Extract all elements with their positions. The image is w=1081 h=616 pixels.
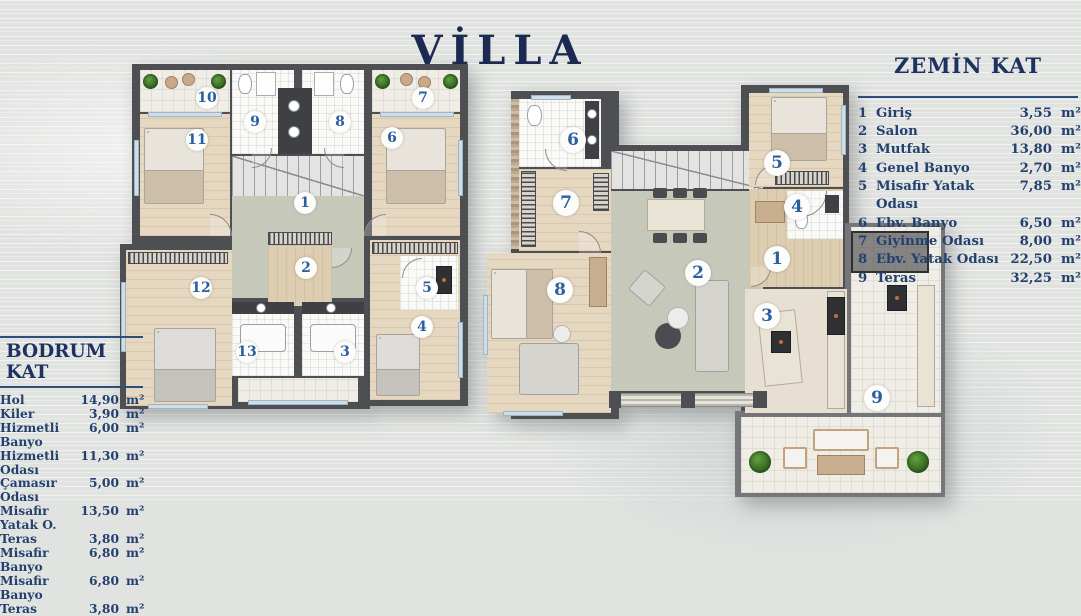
legend-num: 5 (858, 178, 876, 215)
legend-area: 6,50 (1006, 215, 1052, 233)
dining-chair (673, 188, 687, 198)
wardrobe (128, 252, 228, 264)
window (134, 140, 139, 196)
legend-unit: m² (119, 449, 143, 477)
room-number-badge: 13 (236, 341, 258, 363)
legend-area: 3,80 (77, 532, 119, 546)
room-number-badge: 2 (295, 257, 317, 279)
grill-icon (887, 285, 907, 311)
toilet-icon (340, 74, 354, 94)
sink-wall (278, 88, 312, 154)
sofa (695, 280, 729, 372)
plant-icon (211, 74, 226, 89)
bodrum-kat-legend-title: BODRUM KAT (0, 336, 143, 388)
coffee-table (667, 307, 689, 329)
legend-unit: m² (1052, 251, 1078, 269)
wardrobe (593, 173, 609, 211)
desk (589, 257, 607, 307)
sink-icon (256, 303, 266, 313)
legend-unit: m² (1052, 233, 1078, 251)
room-number-badge: 10 (196, 87, 218, 109)
plant-icon (749, 451, 771, 473)
staircase (611, 151, 763, 189)
wardrobe (268, 232, 332, 245)
terrace-shelf (917, 285, 935, 407)
legend-row: 8Ebv. Yatak Odası22,50m² (858, 251, 1078, 269)
legend-name: Misafir Banyo (0, 574, 77, 602)
sink-icon (587, 109, 597, 119)
sink-icon (288, 100, 300, 112)
room-number-badge: 6 (560, 127, 586, 153)
legend-row: 3Mutfak13,80m² (858, 141, 1078, 159)
legend-unit: m² (1052, 141, 1078, 159)
legend-unit: m² (119, 574, 143, 602)
legend-num: 2 (858, 123, 876, 141)
legend-unit: m² (119, 532, 143, 546)
bodrum-kat-plan: 1 2 3 4 5 6 7 8 9 10 11 12 13 (118, 62, 476, 444)
legend-row: Hizmetli Banyo6,00m² (0, 421, 143, 449)
dining-chair (693, 188, 707, 198)
legend-name: Çamasır Odası (0, 476, 77, 504)
window (148, 112, 222, 117)
legend-name: Teras (0, 532, 77, 546)
window (503, 411, 563, 416)
dining-table (647, 199, 705, 231)
legend-name: Ebv. Yatak Odası (876, 251, 1006, 269)
sink-icon (326, 303, 336, 313)
legend-name: Teras (0, 602, 77, 616)
outdoor-table (817, 455, 865, 475)
bodrum-kat-legend-rows: Hol14,90m²Kiler3,90m²Hizmetli Banyo6,00m… (0, 388, 143, 616)
room-number-badge: 4 (784, 194, 810, 220)
legend-name: Hizmetli Odası (0, 449, 77, 477)
legend-area: 6,00 (77, 421, 119, 449)
pillar (753, 391, 767, 408)
stone-veneer-wall (511, 99, 519, 249)
legend-row: Teras3,80m² (0, 532, 143, 546)
legend-unit: m² (1052, 160, 1078, 178)
legend-unit: m² (119, 476, 143, 504)
legend-name: Genel Banyo (876, 160, 1006, 178)
bed (376, 334, 420, 396)
dining-chair (693, 233, 707, 243)
sofa (519, 343, 579, 395)
dining-chair (673, 233, 687, 243)
legend-area: 3,55 (1006, 105, 1052, 123)
room-number-badge: 9 (864, 385, 890, 411)
pillar (609, 391, 621, 408)
room-number-badge: 1 (764, 246, 790, 272)
legend-area: 13,80 (1006, 141, 1052, 159)
legend-unit: m² (1052, 178, 1078, 215)
legend-rule (858, 96, 1078, 98)
legend-area: 2,70 (1006, 160, 1052, 178)
room-number-badge: 2 (685, 260, 711, 286)
legend-row: 4Genel Banyo2,70m² (858, 160, 1078, 178)
legend-unit: m² (119, 504, 143, 532)
legend-name: Mutfak (876, 141, 1006, 159)
room-number-badge: 11 (186, 129, 208, 151)
room-number-badge: 9 (244, 111, 266, 133)
legend-name: Kiler (0, 407, 77, 421)
legend-unit: m² (1052, 105, 1078, 123)
legend-num: 6 (858, 215, 876, 233)
legend-row: Kiler3,90m² (0, 407, 143, 421)
room-number-badge: 8 (547, 277, 573, 303)
legend-row: 5Misafir Yatak Odası7,85m² (858, 178, 1078, 215)
room-number-badge: 5 (416, 277, 438, 299)
legend-unit: m² (1052, 123, 1078, 141)
legend-unit: m² (119, 421, 143, 449)
entry-bench (755, 201, 785, 223)
legend-area: 11,30 (77, 449, 119, 477)
legend-row: Çamasır Odası5,00m² (0, 476, 143, 504)
window (483, 295, 488, 355)
room-number-badge: 1 (294, 192, 316, 214)
legend-area: 5,00 (77, 476, 119, 504)
legend-row: Teras3,80m² (0, 602, 143, 616)
toilet-icon (238, 74, 252, 94)
terrace-chair (182, 73, 195, 86)
room-number-badge: 7 (553, 190, 579, 216)
zemin-kat-legend: ZEMİN KAT 1Giriş3,55m²2Salon36,00m²3Mutf… (858, 36, 1078, 288)
bed (491, 269, 553, 339)
dining-chair (653, 188, 667, 198)
window (531, 95, 571, 100)
legend-row: 2Salon36,00m² (858, 123, 1078, 141)
legend-area: 6,80 (77, 546, 119, 574)
legend-area: 14,90 (77, 393, 119, 407)
legend-area: 36,00 (1006, 123, 1052, 141)
room-number-badge: 3 (754, 303, 780, 329)
legend-num: 7 (858, 233, 876, 251)
room-number-badge: 5 (764, 150, 790, 176)
legend-unit: m² (1052, 215, 1078, 233)
sink-counter (825, 195, 839, 213)
window (458, 140, 463, 196)
legend-name: Misafir Yatak O. (0, 504, 77, 532)
legend-num: 3 (858, 141, 876, 159)
legend-row: 9Teras32,25m² (858, 270, 1078, 288)
legend-row: Hizmetli Odası11,30m² (0, 449, 143, 477)
room-number-badge: 4 (411, 316, 433, 338)
legend-name: Giyinme Odası (876, 233, 1006, 251)
legend-row: 1Giriş3,55m² (858, 105, 1078, 123)
legend-name: Misafir Yatak Odası (876, 178, 1006, 215)
dining-chair (653, 233, 667, 243)
legend-num: 9 (858, 270, 876, 288)
legend-name: Hizmetli Banyo (0, 421, 77, 449)
window (458, 322, 463, 378)
legend-num: 8 (858, 251, 876, 269)
legend-num: 4 (858, 160, 876, 178)
legend-area: 6,80 (77, 574, 119, 602)
legend-unit: m² (1052, 270, 1078, 288)
room-number-badge: 8 (329, 111, 351, 133)
legend-row: 6Ebv. Banyo6,50m² (858, 215, 1078, 233)
legend-num: 1 (858, 105, 876, 123)
plant-icon (907, 451, 929, 473)
legend-area: 3,90 (77, 407, 119, 421)
bodrum-kat-legend: BODRUM KAT Hol14,90m²Kiler3,90m²Hizmetli… (0, 336, 143, 616)
legend-name: Salon (876, 123, 1006, 141)
window (148, 404, 208, 409)
legend-unit: m² (119, 393, 143, 407)
window (380, 112, 454, 117)
plant-icon (443, 74, 458, 89)
legend-name: Hol (0, 393, 77, 407)
pillar (681, 391, 695, 408)
legend-unit: m² (119, 546, 143, 574)
legend-unit: m² (119, 602, 143, 616)
legend-row: Hol14,90m² (0, 393, 143, 407)
legend-area: 13,50 (77, 504, 119, 532)
wardrobe (372, 242, 458, 254)
oven-icon (827, 297, 845, 335)
window (248, 400, 348, 405)
terrace-chair (165, 76, 178, 89)
legend-area: 22,50 (1006, 251, 1052, 269)
toilet-icon (527, 105, 542, 126)
wardrobe (521, 171, 536, 247)
outdoor-chair (875, 447, 899, 469)
room-number-badge: 12 (190, 277, 212, 299)
window (769, 88, 823, 93)
bed (154, 328, 216, 402)
room-terrace-strip (238, 378, 358, 402)
legend-area: 7,85 (1006, 178, 1052, 215)
shower-tray (314, 72, 334, 96)
legend-area: 32,25 (1006, 270, 1052, 288)
legend-name: Teras (876, 270, 1006, 288)
zemin-kat-legend-rows: 1Giriş3,55m²2Salon36,00m²3Mutfak13,80m²4… (858, 105, 1078, 288)
side-table (553, 325, 571, 343)
shower-tray (256, 72, 276, 96)
room-number-badge: 7 (412, 87, 434, 109)
sink-icon (288, 126, 300, 138)
legend-row: Misafir Banyo6,80m² (0, 574, 143, 602)
zemin-kat-legend-title: ZEMİN KAT (858, 53, 1078, 78)
terrace-chair (400, 73, 413, 86)
room-number-badge: 6 (381, 127, 403, 149)
legend-row: Misafir Yatak O.13,50m² (0, 504, 143, 532)
legend-area: 3,80 (77, 602, 119, 616)
legend-unit: m² (119, 407, 143, 421)
plant-icon (143, 74, 158, 89)
outdoor-sofa (813, 429, 869, 451)
room-number-badge: 3 (334, 341, 356, 363)
outdoor-chair (783, 447, 807, 469)
legend-name: Giriş (876, 105, 1006, 123)
cooktop-icon (771, 331, 791, 353)
legend-name: Misafir Banyo (0, 546, 77, 574)
legend-row: 7Giyinme Odası8,00m² (858, 233, 1078, 251)
washer-icon (436, 266, 452, 294)
window (841, 105, 846, 155)
plant-icon (375, 74, 390, 89)
sink-icon (587, 135, 597, 145)
legend-name: Ebv. Banyo (876, 215, 1006, 233)
legend-area: 8,00 (1006, 233, 1052, 251)
legend-row: Misafir Banyo6,80m² (0, 546, 143, 574)
